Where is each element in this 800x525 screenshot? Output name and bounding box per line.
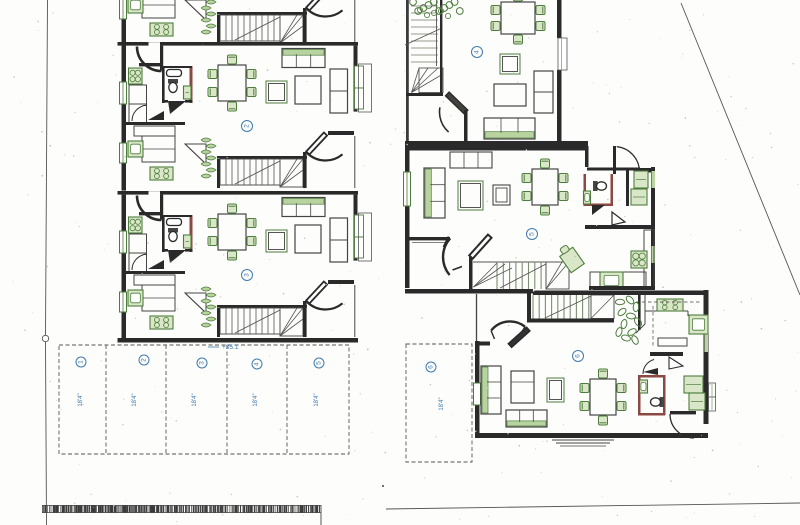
svg-text:5: 5 [316,361,323,365]
svg-text:2: 2 [244,124,251,128]
svg-text:4: 4 [254,362,261,366]
svg-text:6: 6 [575,354,582,358]
svg-text:5: 5 [529,232,536,236]
svg-text:3: 3 [244,273,251,277]
svg-text:18'4": 18'4" [132,393,138,406]
svg-text:6: 6 [428,365,435,369]
svg-text:2: 2 [141,358,148,362]
svg-text:3: 3 [199,361,206,365]
svg-text:18'4": 18'4" [253,393,259,406]
svg-text:1: 1 [78,360,85,364]
svg-text:18'4": 18'4" [314,393,320,406]
svg-text:18'4": 18'4" [439,397,445,410]
svg-text:4: 4 [474,50,481,54]
svg-text:+35.1: +35.1 [222,344,239,351]
svg-text:18'4": 18'4" [192,393,198,406]
